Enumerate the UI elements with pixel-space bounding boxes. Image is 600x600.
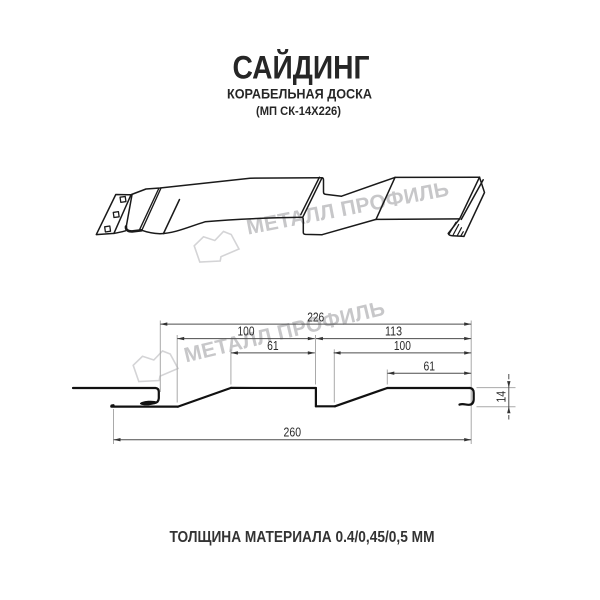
- svg-text:100: 100: [394, 339, 411, 353]
- svg-text:61: 61: [424, 359, 436, 373]
- svg-text:САЙДИНГ: САЙДИНГ: [233, 50, 370, 86]
- svg-text:14: 14: [495, 391, 509, 403]
- svg-text:ТОЛЩИНА МАТЕРИАЛА 0.4/0,45/0,5: ТОЛЩИНА МАТЕРИАЛА 0.4/0,45/0,5 ММ: [170, 529, 435, 546]
- svg-text:226: 226: [307, 310, 324, 324]
- svg-text:61: 61: [267, 339, 279, 353]
- svg-text:260: 260: [284, 426, 302, 440]
- svg-text:КОРАБЕЛЬНАЯ ДОСКА: КОРАБЕЛЬНАЯ ДОСКА: [227, 86, 372, 101]
- svg-text:113: 113: [385, 325, 402, 339]
- svg-text:100: 100: [238, 325, 255, 339]
- svg-text:(МП СК-14Х226): (МП СК-14Х226): [256, 104, 341, 118]
